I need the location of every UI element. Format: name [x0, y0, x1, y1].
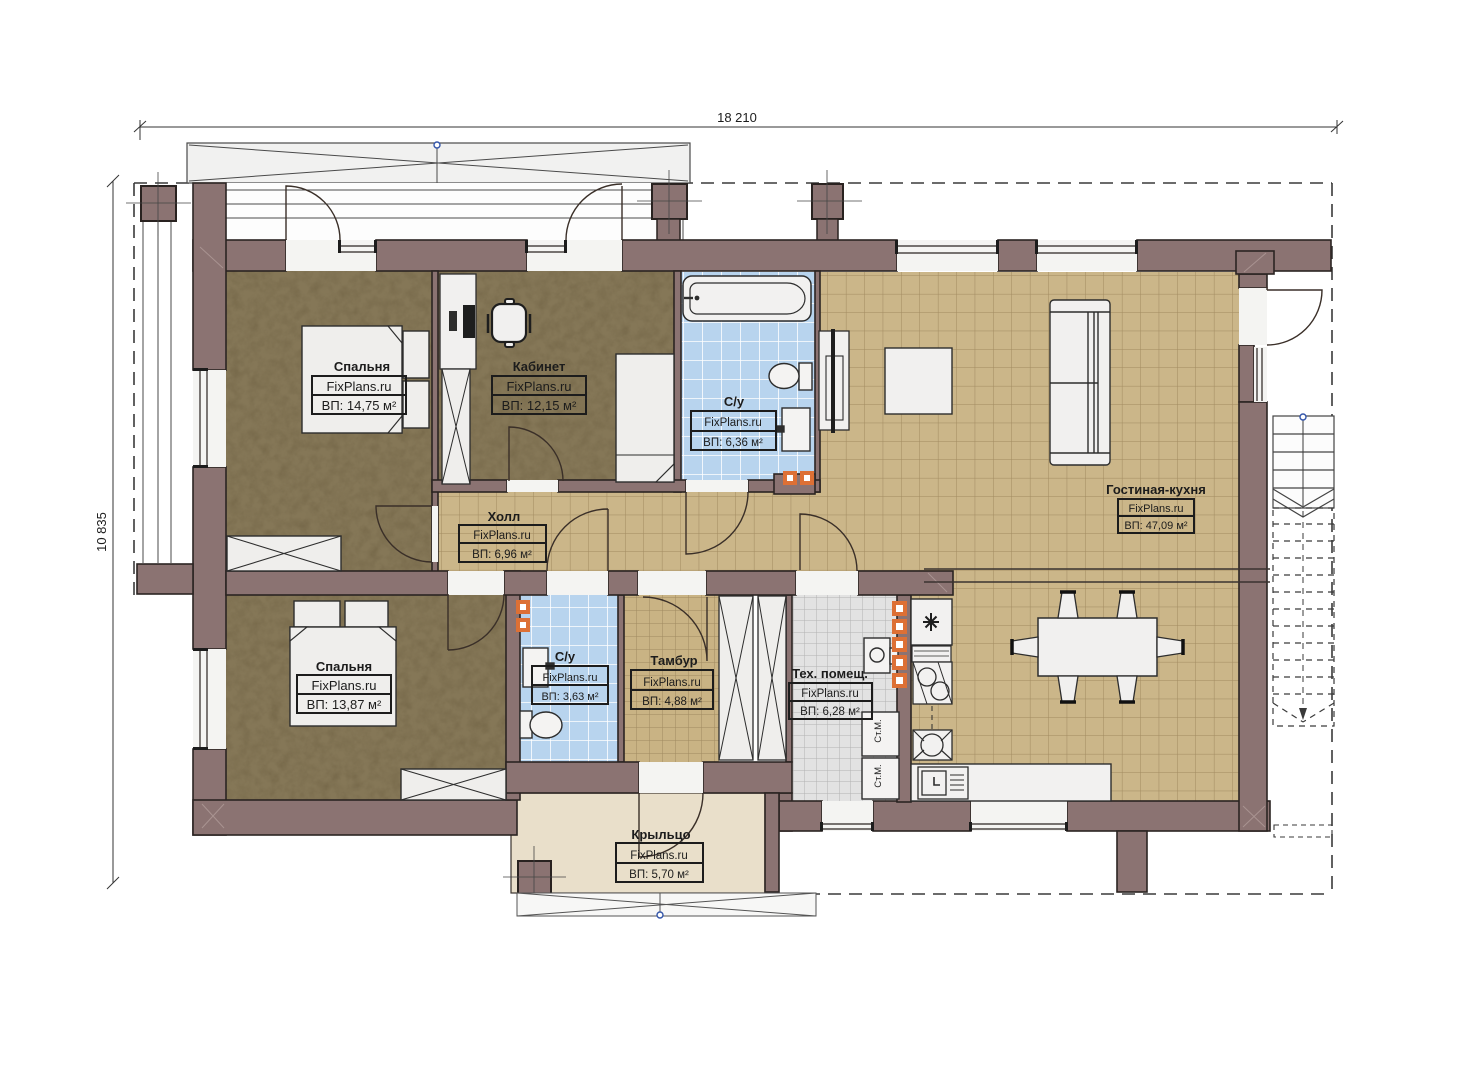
- svg-text:Спальня: Спальня: [316, 659, 372, 674]
- svg-text:18 210: 18 210: [717, 110, 757, 125]
- svg-text:FixPlans.ru: FixPlans.ru: [643, 677, 701, 689]
- svg-text:С/у: С/у: [555, 649, 576, 664]
- svg-text:FixPlans.ru: FixPlans.ru: [326, 379, 391, 394]
- svg-text:FixPlans.ru: FixPlans.ru: [1128, 503, 1183, 515]
- svg-text:FixPlans.ru: FixPlans.ru: [311, 678, 376, 693]
- svg-text:ВП: 47,09 м²: ВП: 47,09 м²: [1124, 520, 1188, 532]
- svg-text:FixPlans.ru: FixPlans.ru: [630, 850, 688, 862]
- svg-text:С/у: С/у: [724, 394, 745, 409]
- svg-text:Тех. помещ.: Тех. помещ.: [792, 666, 868, 681]
- svg-text:Гостиная-кухня: Гостиная-кухня: [1106, 482, 1206, 497]
- svg-text:ВП: 14,75 м²: ВП: 14,75 м²: [322, 398, 397, 413]
- svg-text:10 835: 10 835: [94, 512, 109, 552]
- svg-text:ВП: 5,70 м²: ВП: 5,70 м²: [629, 869, 689, 881]
- svg-text:Ст.М.: Ст.М.: [873, 719, 884, 742]
- svg-text:Холл: Холл: [488, 509, 521, 524]
- svg-text:FixPlans.ru: FixPlans.ru: [473, 530, 531, 542]
- svg-text:ВП: 6,28 м²: ВП: 6,28 м²: [800, 706, 860, 718]
- svg-text:ВП: 4,88 м²: ВП: 4,88 м²: [642, 696, 702, 708]
- svg-text:FixPlans.ru: FixPlans.ru: [704, 417, 762, 429]
- svg-text:Спальня: Спальня: [334, 359, 390, 374]
- svg-text:FixPlans.ru: FixPlans.ru: [542, 672, 597, 684]
- svg-text:ВП: 3,63 м²: ВП: 3,63 м²: [541, 691, 598, 703]
- svg-text:Тамбур: Тамбур: [650, 653, 697, 668]
- svg-text:FixPlans.ru: FixPlans.ru: [506, 379, 571, 394]
- svg-text:ВП: 6,36 м²: ВП: 6,36 м²: [703, 437, 763, 449]
- svg-text:Ст.М.: Ст.М.: [873, 764, 884, 787]
- svg-text:ВП: 13,87 м²: ВП: 13,87 м²: [307, 697, 382, 712]
- svg-text:ВП: 6,96 м²: ВП: 6,96 м²: [472, 549, 532, 561]
- svg-text:ВП: 12,15 м²: ВП: 12,15 м²: [502, 398, 577, 413]
- svg-text:Крыльцо: Крыльцо: [631, 827, 690, 842]
- svg-text:FixPlans.ru: FixPlans.ru: [801, 688, 859, 700]
- svg-text:Кабинет: Кабинет: [513, 359, 566, 374]
